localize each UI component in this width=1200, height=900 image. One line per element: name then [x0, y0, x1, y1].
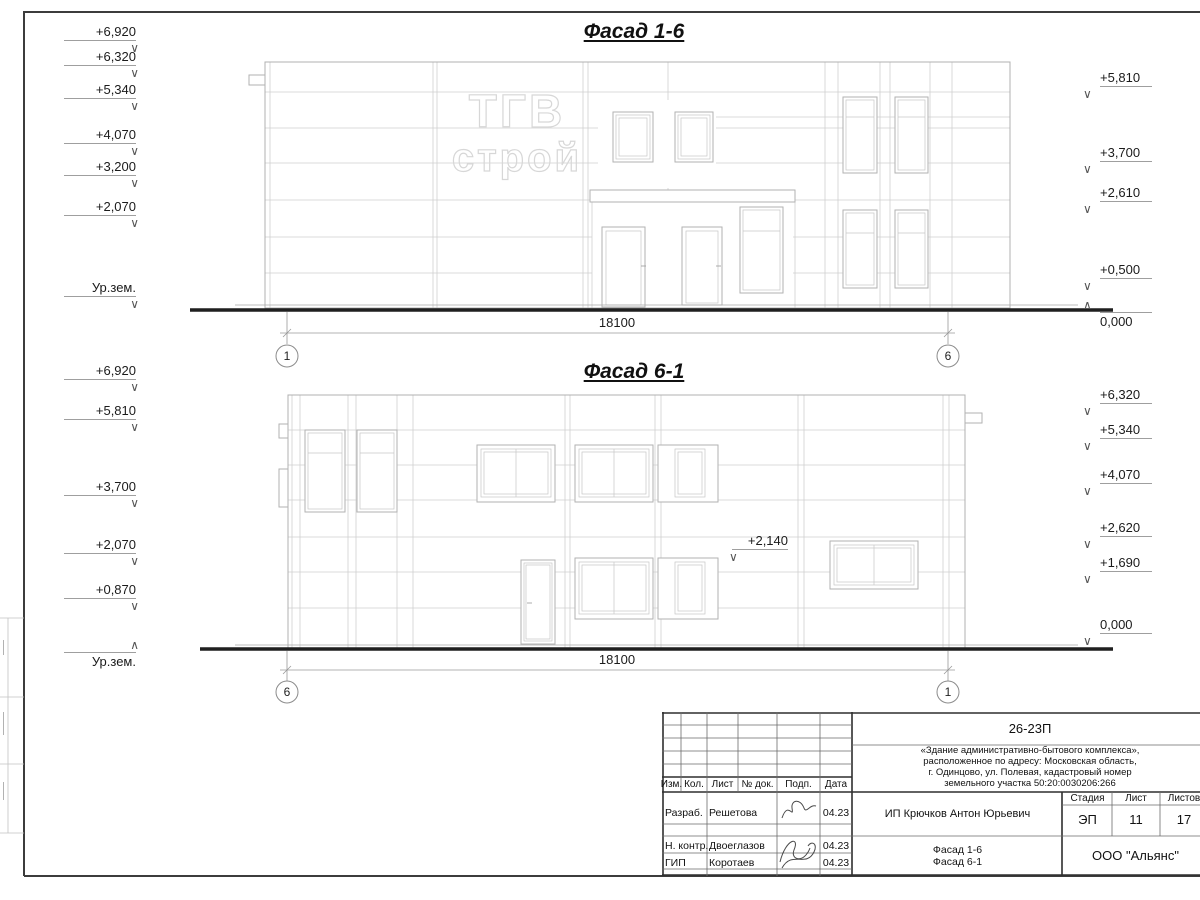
elevation-arrow-icon: ∨: [130, 298, 139, 310]
elevation-mark: +6,920∨: [64, 24, 136, 41]
logo-watermark-line2: строй: [452, 136, 582, 180]
row-date: 04.23: [820, 806, 852, 820]
elevation-arrow-icon: ∨: [130, 177, 139, 189]
drawing-sheet: ТГВ строй 1 6: [0, 0, 1200, 900]
dimension-label: 18100: [577, 315, 657, 330]
row-date: 04.23: [820, 839, 852, 853]
elevation-mark: 0,000∨: [1086, 617, 1152, 634]
elevation-arrow-icon: ∨: [1083, 163, 1092, 175]
elevation-arrow-icon: ∨: [1083, 485, 1092, 497]
facade-1-6-title: Фасад 1-6: [539, 20, 729, 44]
elevation-arrow-icon: ∨: [130, 381, 139, 393]
elevation-arrow-icon: ∨: [130, 100, 139, 112]
col-header-ndok: № док.: [738, 778, 777, 791]
axis-bubble-left: 6: [284, 685, 291, 699]
project-code: 26-23П: [852, 716, 1200, 742]
elevation-arrow-icon: ∨: [130, 67, 139, 79]
sheets-total: 17: [1160, 806, 1200, 834]
title-block: 26-23П «Здание административно-бытового …: [662, 712, 1200, 876]
elevation-arrow-icon: ∨: [1083, 280, 1092, 292]
row-role: ГИП: [665, 856, 709, 870]
row-name: Двоеглазов: [709, 839, 775, 853]
elevation-arrow-icon: ∨: [729, 551, 738, 563]
row-role: Н. контр.: [665, 839, 709, 853]
elevation-arrow-icon: ∨: [130, 555, 139, 567]
elevation-arrow-icon: ∨: [130, 217, 139, 229]
axis-bubble-right: 1: [945, 685, 952, 699]
logo-watermark-line1: ТГВ: [469, 85, 565, 137]
elevation-arrow-icon: ∨: [1083, 203, 1092, 215]
elevation-mark: +6,320∨: [1086, 387, 1152, 404]
elevation-mark: +3,700∨: [1086, 145, 1152, 162]
elevation-mark: +6,920∨: [64, 363, 136, 380]
col-header-data: Дата: [820, 778, 852, 791]
row-role: Разраб.: [665, 806, 707, 820]
elevation-mark: +0,500∨: [1086, 262, 1152, 279]
row-name: Решетова: [709, 806, 775, 820]
elevation-arrow-icon: ∨: [1083, 405, 1092, 417]
elevation-mark: +4,070∨: [64, 127, 136, 144]
client-name: ИП Крючков Антон Юрьевич: [853, 798, 1062, 830]
elevation-arrow-icon: ∧: [130, 639, 139, 651]
elevation-mark: +2,610∨: [1086, 185, 1152, 202]
elevation-mark: +2,620∨: [1086, 520, 1152, 537]
sheet-number: 11: [1112, 806, 1160, 834]
col-header-podp: Подп.: [777, 778, 820, 791]
elevation-arrow-icon: ∨: [130, 600, 139, 612]
elevation-arrow-icon: ∨: [1083, 538, 1092, 550]
col-header-kol: Кол.: [681, 778, 707, 791]
col-header-izm: Изм.: [662, 778, 681, 791]
elevation-arrow-icon: ∨: [130, 145, 139, 157]
elevation-mark: +4,070∨: [1086, 467, 1152, 484]
elevation-mark: +6,320∨: [64, 49, 136, 66]
sheet-subject: Фасад 1-6 Фасад 6-1: [853, 838, 1062, 874]
elevation-mark: +1,690∨: [1086, 555, 1152, 572]
axis-bubble-left: 1: [284, 349, 291, 363]
elevation-mark: +5,810∨: [1086, 70, 1152, 87]
sheet-label: Лист: [1112, 793, 1160, 805]
elevation-mark: +5,810∨: [64, 403, 136, 420]
ground-level-mark: Ур.зем.∧: [64, 652, 136, 670]
stage-value: ЭП: [1063, 806, 1112, 834]
axis-bubble-right: 6: [945, 349, 952, 363]
elevation-arrow-icon: ∨: [1083, 635, 1092, 647]
stage-label: Стадия: [1063, 793, 1112, 805]
elevation-arrow-icon: ∧: [1083, 299, 1092, 311]
row-date: 04.23: [820, 856, 852, 870]
row-name: Коротаев: [709, 856, 775, 870]
dimension-label: 18100: [577, 652, 657, 667]
elevation-mark: +5,340∨: [1086, 422, 1152, 439]
company-name: ООО "Альянс": [1063, 837, 1200, 875]
elevation-arrow-icon: ∨: [1083, 573, 1092, 585]
elevation-arrow-icon: ∨: [130, 421, 139, 433]
sheets-total-label: Листов: [1160, 793, 1200, 805]
project-description: «Здание административно-бытового комплек…: [855, 745, 1200, 791]
elevation-mark: +2,070∨: [64, 537, 136, 554]
elevation-arrow-icon: ∨: [1083, 440, 1092, 452]
elevation-mark: +2,140∨: [732, 533, 788, 550]
elevation-mark: +3,200∨: [64, 159, 136, 176]
elevation-mark: +2,070∨: [64, 199, 136, 216]
col-header-list: Лист: [707, 778, 738, 791]
elevation-mark: 0,000∧: [1086, 312, 1152, 330]
elevation-arrow-icon: ∨: [1083, 88, 1092, 100]
facade-6-1-title: Фасад 6-1: [539, 360, 729, 384]
elevation-mark: +5,340∨: [64, 82, 136, 99]
signature: [780, 801, 816, 868]
elevation-mark: +0,870∨: [64, 582, 136, 599]
ground-level-mark: Ур.зем.∨: [64, 280, 136, 297]
elevation-arrow-icon: ∨: [130, 497, 139, 509]
elevation-mark: +3,700∨: [64, 479, 136, 496]
